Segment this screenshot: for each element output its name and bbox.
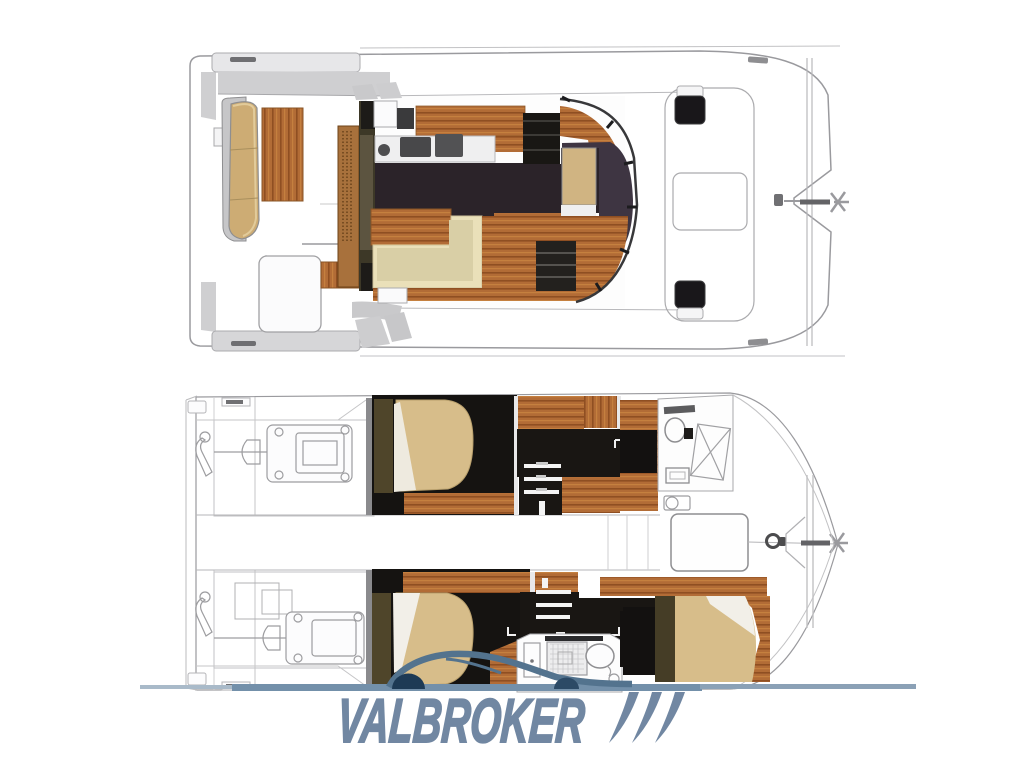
svg-text:VALBROKER: VALBROKER: [335, 687, 587, 756]
